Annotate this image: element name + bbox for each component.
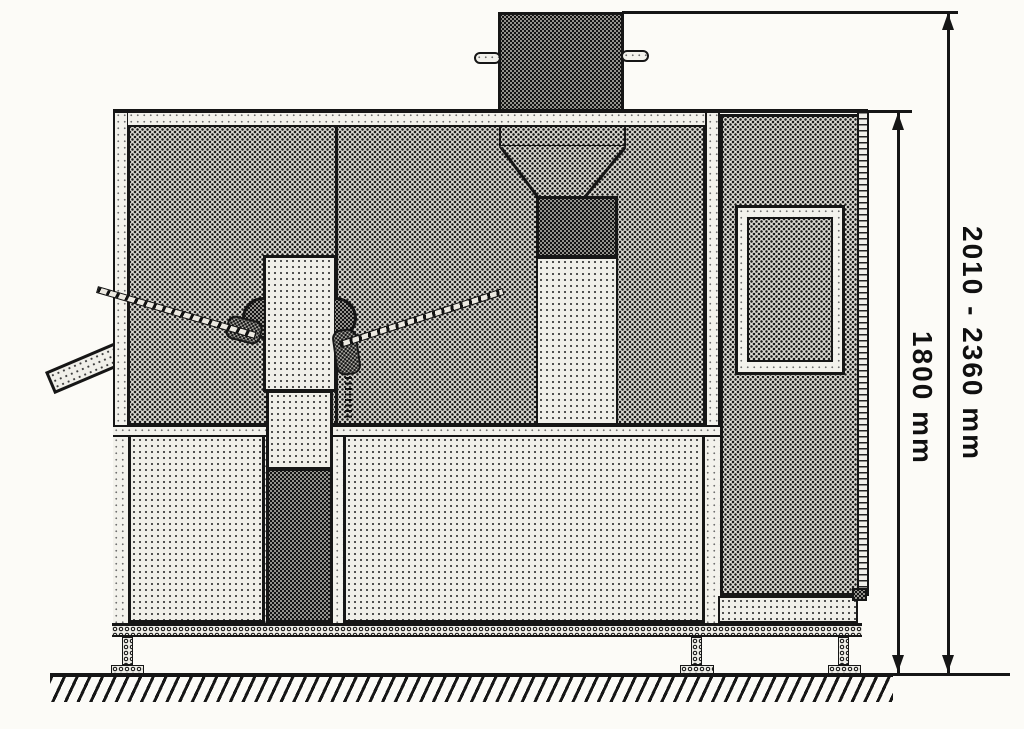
dimension-label-1800: 1800 mm bbox=[906, 331, 938, 465]
press-column-upper bbox=[263, 255, 337, 392]
door-window-glass bbox=[747, 217, 833, 362]
funnel-neck bbox=[536, 196, 618, 258]
right-lower-box bbox=[718, 596, 858, 623]
tension-chain bbox=[345, 377, 352, 419]
feed-hopper bbox=[498, 12, 624, 112]
dimension-1800-arrow-bottom bbox=[892, 655, 904, 672]
middle-band bbox=[113, 425, 720, 437]
funnel-top-section bbox=[499, 127, 626, 147]
lower-left-panel bbox=[128, 437, 265, 623]
dimension-line-1800 bbox=[897, 112, 900, 673]
foot-leg-middle bbox=[691, 637, 702, 665]
hopper-handle-right bbox=[621, 50, 649, 62]
door-hinge-block bbox=[852, 588, 867, 601]
dimension-2010-arrow-bottom bbox=[942, 655, 954, 672]
foot-leg-left bbox=[122, 637, 133, 665]
press-column-middle bbox=[266, 390, 333, 470]
foot-pad-middle bbox=[680, 665, 714, 674]
dimension-label-2010-2360: 2010 - 2360 mm bbox=[956, 226, 988, 461]
extension-line-1800 bbox=[868, 110, 912, 113]
base-frame-band bbox=[112, 623, 862, 637]
door-edge-strip bbox=[857, 112, 869, 596]
dimension-1800-arrow-top bbox=[892, 113, 904, 130]
foot-pad-left bbox=[111, 665, 144, 674]
dimension-line-2010-2360 bbox=[947, 12, 950, 673]
foot-leg-right bbox=[838, 637, 849, 665]
press-column-lower bbox=[266, 468, 333, 623]
ground-hatch bbox=[50, 673, 893, 702]
upper-cabinet-panel bbox=[128, 125, 705, 425]
lower-right-panel bbox=[343, 437, 705, 623]
ground-reference-line bbox=[893, 673, 1010, 676]
foot-pad-right bbox=[828, 665, 861, 674]
hopper-handle-left bbox=[474, 52, 501, 64]
machine-top-line bbox=[113, 109, 868, 113]
extension-line-top bbox=[622, 11, 958, 14]
dimension-2010-arrow-top bbox=[942, 13, 954, 30]
funnel-drop-chute bbox=[536, 257, 618, 425]
technical-drawing-canvas: 1800 mm 2010 - 2360 mm bbox=[0, 0, 1024, 729]
